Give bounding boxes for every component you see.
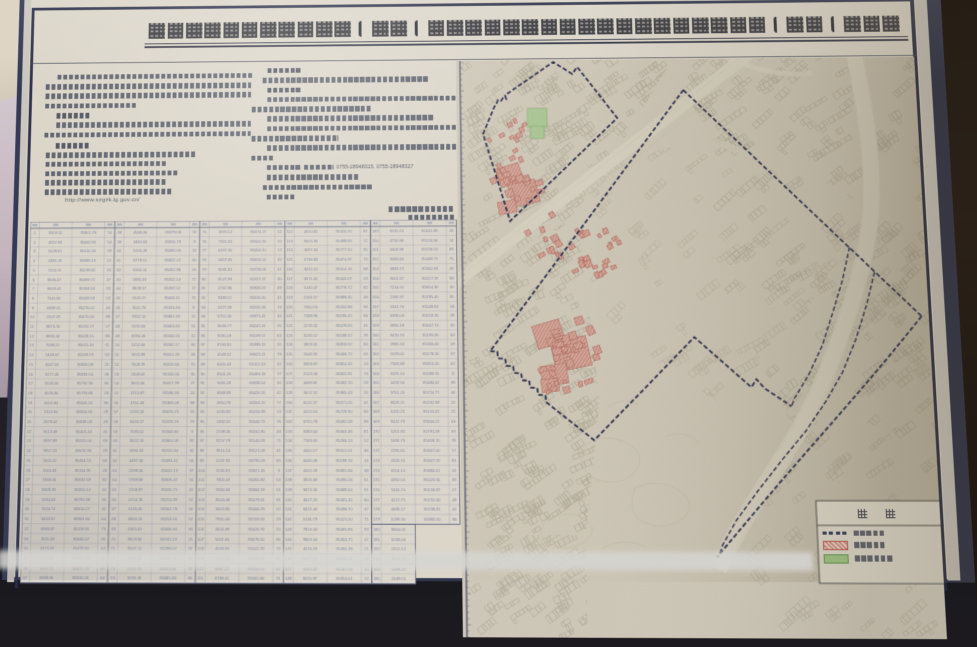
svg-text:85410.30: 85410.30 bbox=[79, 250, 95, 254]
svg-text:85891.94: 85891.94 bbox=[335, 468, 351, 472]
svg-text:51: 51 bbox=[114, 353, 118, 357]
svg-text:7188.96: 7188.96 bbox=[303, 314, 317, 318]
svg-text:3970.12: 3970.12 bbox=[218, 230, 232, 234]
svg-text:7825.99: 7825.99 bbox=[131, 353, 145, 357]
svg-text:73: 73 bbox=[277, 305, 281, 309]
svg-text:171: 171 bbox=[372, 439, 379, 443]
svg-text:43: 43 bbox=[116, 277, 120, 281]
svg-text:21: 21 bbox=[27, 420, 31, 424]
svg-text:8: 8 bbox=[192, 305, 194, 309]
svg-text:41: 41 bbox=[277, 296, 281, 300]
svg-text:39: 39 bbox=[450, 381, 454, 385]
svg-text:29: 29 bbox=[103, 410, 107, 414]
svg-text:85162.80: 85162.80 bbox=[248, 430, 264, 434]
svg-text:60: 60 bbox=[112, 439, 116, 443]
svg-text:35: 35 bbox=[190, 372, 194, 376]
svg-text:134: 134 bbox=[285, 439, 292, 443]
svg-text:52: 52 bbox=[363, 439, 367, 443]
svg-text:85922.91: 85922.91 bbox=[335, 372, 351, 376]
svg-text:17: 17 bbox=[191, 287, 195, 291]
svg-text:85217.19: 85217.19 bbox=[422, 276, 438, 280]
svg-text:2477.38: 2477.38 bbox=[217, 305, 231, 309]
svg-text:41: 41 bbox=[116, 259, 120, 263]
svg-text:6724.18: 6724.18 bbox=[128, 498, 142, 502]
svg-text:80: 80 bbox=[104, 382, 108, 386]
svg-text:4567.05: 4567.05 bbox=[45, 363, 59, 367]
svg-text:8383.64: 8383.64 bbox=[303, 429, 317, 433]
svg-text:47: 47 bbox=[364, 508, 368, 512]
svg-text:85398.15: 85398.15 bbox=[249, 343, 265, 347]
svg-text:26: 26 bbox=[363, 391, 367, 395]
svg-text:60: 60 bbox=[450, 333, 454, 337]
svg-text:176: 176 bbox=[373, 488, 380, 492]
svg-text:3701.20: 3701.20 bbox=[390, 391, 404, 395]
svg-text:95: 95 bbox=[363, 248, 367, 252]
svg-text:5532.27: 5532.27 bbox=[132, 296, 146, 300]
svg-text:85582.70: 85582.70 bbox=[335, 381, 351, 385]
svg-text:73: 73 bbox=[363, 258, 367, 262]
svg-text:85663.46: 85663.46 bbox=[335, 429, 351, 433]
svg-text:40: 40 bbox=[105, 306, 109, 310]
svg-text:46: 46 bbox=[451, 391, 455, 395]
svg-text:85549.83: 85549.83 bbox=[422, 305, 438, 309]
svg-text:23: 23 bbox=[26, 439, 30, 443]
svg-text:138: 138 bbox=[285, 478, 292, 482]
svg-text:117: 117 bbox=[286, 277, 292, 281]
svg-text:168: 168 bbox=[372, 410, 379, 414]
svg-text:157: 157 bbox=[372, 305, 378, 309]
svg-text:5769.68: 5769.68 bbox=[128, 478, 142, 482]
svg-text:85781.09: 85781.09 bbox=[423, 429, 439, 433]
svg-text:85668.94: 85668.94 bbox=[160, 527, 176, 531]
svg-text:18: 18 bbox=[28, 391, 32, 395]
svg-text:142: 142 bbox=[285, 517, 292, 521]
svg-text:88: 88 bbox=[200, 353, 204, 357]
svg-text:4419.56: 4419.56 bbox=[390, 381, 404, 385]
svg-text:30: 30 bbox=[450, 323, 454, 327]
svg-text:85724.99: 85724.99 bbox=[160, 498, 176, 502]
svg-text:85938.54: 85938.54 bbox=[249, 381, 265, 385]
svg-text:56: 56 bbox=[189, 459, 193, 463]
svg-text:17: 17 bbox=[451, 449, 455, 453]
svg-text:20: 20 bbox=[277, 343, 281, 347]
svg-text:8359.52: 8359.52 bbox=[48, 231, 62, 235]
svg-text:85079.61: 85079.61 bbox=[248, 498, 264, 502]
svg-text:7855.44: 7855.44 bbox=[215, 517, 229, 521]
svg-text:6100.23: 6100.23 bbox=[390, 410, 404, 414]
svg-text:152: 152 bbox=[372, 258, 378, 262]
svg-text:26: 26 bbox=[190, 353, 194, 357]
svg-text:85344.84: 85344.84 bbox=[163, 305, 179, 309]
svg-text:2535.81: 2535.81 bbox=[215, 468, 229, 472]
svg-text:4400.17: 4400.17 bbox=[303, 449, 317, 453]
svg-text:85902.93: 85902.93 bbox=[421, 267, 437, 271]
svg-text:24: 24 bbox=[26, 449, 30, 453]
svg-text:36: 36 bbox=[104, 372, 108, 376]
svg-text:83: 83 bbox=[451, 429, 455, 433]
svg-text:9005.90: 9005.90 bbox=[303, 239, 317, 243]
svg-text:6788.32: 6788.32 bbox=[214, 577, 228, 581]
svg-text:70: 70 bbox=[190, 362, 194, 366]
svg-text:85816.79: 85816.79 bbox=[165, 240, 181, 244]
svg-text:84: 84 bbox=[363, 314, 367, 318]
svg-text:10: 10 bbox=[276, 381, 280, 385]
svg-text:5065.28: 5065.28 bbox=[216, 381, 230, 385]
svg-text:85709.06: 85709.06 bbox=[248, 517, 264, 521]
svg-text:85232.99: 85232.99 bbox=[423, 400, 439, 404]
svg-text:85791.98: 85791.98 bbox=[73, 498, 89, 502]
svg-text:160: 160 bbox=[372, 333, 379, 337]
svg-text:85200.14: 85200.14 bbox=[74, 488, 90, 492]
svg-text:6389.21: 6389.21 bbox=[46, 306, 60, 310]
svg-text:25: 25 bbox=[188, 537, 192, 541]
svg-text:10: 10 bbox=[30, 315, 34, 319]
svg-text:6365.65: 6365.65 bbox=[127, 527, 141, 531]
svg-text:85454.10: 85454.10 bbox=[250, 249, 266, 253]
svg-text:78: 78 bbox=[451, 439, 455, 443]
svg-text:96: 96 bbox=[452, 518, 456, 522]
svg-text:7631.83: 7631.83 bbox=[40, 537, 54, 541]
svg-text:52: 52 bbox=[188, 517, 192, 521]
svg-text:97: 97 bbox=[199, 439, 203, 443]
svg-text:41: 41 bbox=[363, 401, 367, 405]
svg-text:76: 76 bbox=[276, 420, 280, 424]
svg-text:85863.59: 85863.59 bbox=[161, 439, 177, 443]
svg-text:158: 158 bbox=[372, 314, 378, 318]
svg-text:85209.19: 85209.19 bbox=[77, 353, 93, 357]
svg-text:20: 20 bbox=[191, 268, 195, 272]
svg-text:19: 19 bbox=[27, 401, 31, 405]
svg-text:64: 64 bbox=[112, 478, 116, 482]
svg-text:41: 41 bbox=[276, 449, 280, 453]
svg-text:9232.74: 9232.74 bbox=[389, 229, 403, 233]
svg-text:2166.97: 2166.97 bbox=[389, 295, 403, 299]
svg-text:5200.28: 5200.28 bbox=[133, 249, 147, 253]
svg-text:107: 107 bbox=[197, 537, 204, 541]
svg-text:3293.18: 3293.18 bbox=[126, 576, 140, 580]
svg-text:4756.98: 4756.98 bbox=[389, 239, 403, 243]
svg-text:126: 126 bbox=[285, 362, 291, 366]
svg-text:164: 164 bbox=[372, 372, 379, 376]
svg-text:85078.83: 85078.83 bbox=[335, 324, 351, 328]
svg-text:21: 21 bbox=[104, 363, 108, 367]
svg-text:68: 68 bbox=[111, 517, 115, 521]
svg-text:9433.57: 9433.57 bbox=[129, 420, 143, 424]
svg-text:85109.57: 85109.57 bbox=[249, 334, 265, 338]
svg-text:61: 61 bbox=[364, 478, 368, 482]
svg-text:85728.08: 85728.08 bbox=[250, 267, 266, 271]
svg-text:27: 27 bbox=[452, 488, 456, 492]
svg-text:25: 25 bbox=[277, 239, 281, 243]
svg-text:113: 113 bbox=[286, 239, 292, 243]
svg-text:55: 55 bbox=[113, 391, 117, 395]
svg-text:32: 32 bbox=[277, 258, 281, 262]
svg-text:82: 82 bbox=[201, 296, 205, 300]
svg-text:82: 82 bbox=[189, 439, 193, 443]
svg-text:96: 96 bbox=[276, 537, 280, 541]
svg-text:5736.83: 5736.83 bbox=[303, 258, 317, 262]
svg-text:85202.88: 85202.88 bbox=[335, 305, 351, 309]
svg-text:49: 49 bbox=[452, 498, 456, 502]
svg-text:6860.14: 6860.14 bbox=[128, 517, 142, 521]
svg-text:5292.26: 5292.26 bbox=[130, 410, 144, 414]
svg-text:63: 63 bbox=[451, 420, 455, 424]
svg-text:61: 61 bbox=[112, 449, 116, 453]
svg-text:92: 92 bbox=[200, 391, 204, 395]
svg-text:85098.76: 85098.76 bbox=[422, 371, 438, 375]
svg-text:6: 6 bbox=[32, 278, 34, 282]
svg-text:54: 54 bbox=[114, 382, 118, 386]
svg-text:3883.73: 3883.73 bbox=[389, 267, 403, 271]
svg-text:85092.08: 85092.08 bbox=[335, 420, 351, 424]
svg-text:105: 105 bbox=[197, 517, 204, 521]
svg-text:85155.62: 85155.62 bbox=[423, 410, 439, 414]
svg-text:130: 130 bbox=[285, 401, 292, 405]
svg-text:5579.01: 5579.01 bbox=[390, 352, 404, 356]
svg-text:85565.84: 85565.84 bbox=[247, 577, 263, 581]
svg-text:98: 98 bbox=[199, 449, 203, 453]
svg-text:85695.04: 85695.04 bbox=[335, 478, 351, 482]
svg-text:80: 80 bbox=[364, 498, 368, 502]
svg-text:85521.50: 85521.50 bbox=[335, 518, 351, 522]
svg-text:85676.73: 85676.73 bbox=[162, 410, 178, 414]
svg-text:7468.56: 7468.56 bbox=[42, 478, 56, 482]
svg-text:7634.74: 7634.74 bbox=[41, 507, 55, 511]
svg-text:98: 98 bbox=[363, 420, 367, 424]
svg-text:3032.10: 3032.10 bbox=[303, 267, 317, 271]
svg-text:52: 52 bbox=[188, 498, 192, 502]
svg-text:22: 22 bbox=[364, 577, 368, 581]
svg-text:85979.08: 85979.08 bbox=[165, 230, 181, 234]
svg-text:1: 1 bbox=[33, 231, 35, 235]
svg-text:65: 65 bbox=[106, 287, 110, 291]
svg-text:27: 27 bbox=[190, 381, 194, 385]
svg-text:75: 75 bbox=[449, 257, 453, 261]
svg-text:85159.81: 85159.81 bbox=[73, 527, 89, 531]
svg-text:41: 41 bbox=[103, 430, 107, 434]
svg-text:85792.96: 85792.96 bbox=[76, 382, 92, 386]
svg-text:75: 75 bbox=[191, 296, 195, 300]
svg-text:9422.79: 9422.79 bbox=[390, 420, 404, 424]
svg-text:9397.89: 9397.89 bbox=[43, 439, 57, 443]
svg-text:30: 30 bbox=[449, 285, 453, 289]
svg-text:30: 30 bbox=[277, 277, 281, 281]
svg-text:85469.77: 85469.77 bbox=[421, 257, 437, 261]
svg-text:85729.90: 85729.90 bbox=[335, 410, 351, 414]
svg-text:3591.81: 3591.81 bbox=[218, 268, 232, 272]
svg-text:148: 148 bbox=[284, 577, 291, 581]
svg-text:52: 52 bbox=[114, 363, 118, 367]
svg-text:7583.52: 7583.52 bbox=[129, 430, 143, 434]
svg-text:104: 104 bbox=[197, 507, 204, 511]
svg-text:17: 17 bbox=[277, 249, 281, 253]
svg-text:25: 25 bbox=[191, 315, 195, 319]
svg-text:20: 20 bbox=[190, 391, 194, 395]
svg-text:50: 50 bbox=[114, 344, 118, 348]
svg-text:62: 62 bbox=[112, 459, 116, 463]
svg-text:9513.08: 9513.08 bbox=[43, 430, 57, 434]
svg-text:177: 177 bbox=[373, 498, 380, 502]
svg-text:8308.33: 8308.33 bbox=[41, 488, 55, 492]
svg-text:85793.88: 85793.88 bbox=[76, 391, 92, 395]
svg-text:85778.72: 85778.72 bbox=[335, 286, 351, 290]
svg-text:9332.10: 9332.10 bbox=[131, 315, 145, 319]
svg-text:115: 115 bbox=[286, 258, 292, 262]
svg-text:3389.12: 3389.12 bbox=[217, 296, 231, 300]
svg-text:92: 92 bbox=[192, 230, 196, 234]
svg-text:5084.63: 5084.63 bbox=[41, 498, 55, 502]
svg-text:8255.97: 8255.97 bbox=[302, 577, 316, 581]
svg-text:4624.99: 4624.99 bbox=[215, 527, 229, 531]
svg-text:99: 99 bbox=[199, 459, 203, 463]
svg-text:8501.26: 8501.26 bbox=[217, 372, 231, 376]
svg-text:47: 47 bbox=[115, 315, 119, 319]
svg-text:29: 29 bbox=[276, 517, 280, 521]
svg-text:85028.15: 85028.15 bbox=[77, 334, 93, 338]
svg-text:3971.65: 3971.65 bbox=[303, 277, 317, 281]
svg-text:120: 120 bbox=[286, 305, 292, 309]
svg-text:42: 42 bbox=[452, 508, 456, 512]
svg-text:77: 77 bbox=[202, 249, 206, 253]
svg-text:85066.72: 85066.72 bbox=[335, 352, 351, 356]
svg-text:8948.99: 8948.99 bbox=[216, 391, 230, 395]
svg-text:9823.90: 9823.90 bbox=[127, 537, 141, 541]
svg-text:5003.98: 5003.98 bbox=[389, 248, 403, 252]
svg-text:85881.93: 85881.93 bbox=[163, 315, 179, 319]
svg-text:85: 85 bbox=[276, 459, 280, 463]
svg-text:9696.07: 9696.07 bbox=[47, 278, 61, 282]
svg-text:65: 65 bbox=[363, 352, 367, 356]
svg-text:85234.89: 85234.89 bbox=[248, 410, 264, 414]
svg-text:156: 156 bbox=[372, 295, 378, 299]
svg-text:85795.09: 85795.09 bbox=[248, 459, 264, 463]
svg-text:3605.40: 3605.40 bbox=[130, 382, 144, 386]
svg-text:7405.43: 7405.43 bbox=[215, 478, 229, 482]
svg-text:175: 175 bbox=[373, 478, 380, 482]
svg-text:85726.53: 85726.53 bbox=[421, 248, 437, 252]
svg-text:85598.93: 85598.93 bbox=[162, 391, 178, 395]
svg-text:13: 13 bbox=[363, 362, 367, 366]
svg-text:119: 119 bbox=[286, 296, 292, 300]
svg-text:9257.79: 9257.79 bbox=[216, 439, 230, 443]
svg-text:4217.75: 4217.75 bbox=[391, 498, 405, 502]
svg-text:9511.14: 9511.14 bbox=[216, 449, 230, 453]
svg-text:22: 22 bbox=[451, 410, 455, 414]
svg-text:7583.88: 7583.88 bbox=[390, 362, 404, 366]
svg-text:7345.85: 7345.85 bbox=[46, 296, 60, 300]
svg-text:85921.33: 85921.33 bbox=[248, 468, 264, 472]
svg-text:48: 48 bbox=[276, 430, 280, 434]
svg-text:13: 13 bbox=[29, 344, 33, 348]
svg-text:5237.65: 5237.65 bbox=[216, 459, 230, 463]
svg-text:85561.78: 85561.78 bbox=[160, 507, 176, 511]
svg-text:50: 50 bbox=[107, 231, 111, 235]
svg-text:8873.70: 8873.70 bbox=[46, 325, 60, 329]
svg-text:85501.62: 85501.62 bbox=[250, 239, 266, 243]
svg-text:85989.35: 85989.35 bbox=[335, 295, 351, 299]
svg-text:85156.06: 85156.06 bbox=[162, 372, 178, 376]
svg-text:85777.50: 85777.50 bbox=[335, 248, 351, 252]
svg-text:91: 91 bbox=[200, 381, 204, 385]
svg-text:4761.08: 4761.08 bbox=[130, 401, 144, 405]
svg-text:5094.73: 5094.73 bbox=[390, 439, 404, 443]
svg-text:85592.17: 85592.17 bbox=[163, 343, 179, 347]
svg-text:4548.52: 4548.52 bbox=[217, 353, 231, 357]
svg-text:85074.27: 85074.27 bbox=[250, 230, 266, 234]
svg-text:29: 29 bbox=[102, 449, 106, 453]
svg-text:2114.84: 2114.84 bbox=[44, 410, 58, 414]
svg-text:79: 79 bbox=[277, 353, 281, 357]
svg-text:162: 162 bbox=[372, 352, 379, 356]
svg-text:85886.61: 85886.61 bbox=[423, 468, 439, 472]
svg-text:106: 106 bbox=[197, 527, 204, 531]
svg-text:48: 48 bbox=[363, 295, 367, 299]
svg-text:29: 29 bbox=[104, 391, 108, 395]
svg-text:37: 37 bbox=[22, 576, 26, 580]
svg-text:155: 155 bbox=[372, 286, 378, 290]
svg-text:33: 33 bbox=[106, 268, 110, 272]
svg-text:93: 93 bbox=[451, 459, 455, 463]
svg-text:84: 84 bbox=[201, 315, 205, 319]
svg-text:14: 14 bbox=[449, 238, 453, 242]
svg-text:6337.35: 6337.35 bbox=[218, 249, 232, 253]
svg-text:94: 94 bbox=[200, 410, 204, 414]
svg-text:57: 57 bbox=[113, 410, 117, 414]
svg-text:5145.47: 5145.47 bbox=[303, 286, 317, 290]
svg-text:5152.00: 5152.00 bbox=[131, 343, 145, 347]
svg-text:167: 167 bbox=[372, 400, 379, 404]
svg-text:2: 2 bbox=[33, 241, 35, 245]
svg-text:9803.44: 9803.44 bbox=[303, 537, 317, 541]
svg-text:85838.03: 85838.03 bbox=[75, 420, 91, 424]
svg-text:22: 22 bbox=[451, 400, 455, 404]
svg-text:6398.04: 6398.04 bbox=[390, 314, 404, 318]
svg-text:44: 44 bbox=[116, 287, 120, 291]
svg-text:85066.11: 85066.11 bbox=[164, 296, 180, 300]
svg-text:2308.62: 2308.62 bbox=[130, 372, 144, 376]
svg-text:8746.91: 8746.91 bbox=[217, 343, 231, 347]
svg-text:5251.83: 5251.83 bbox=[390, 429, 404, 433]
svg-text:136: 136 bbox=[285, 459, 292, 463]
svg-text:85555.75: 85555.75 bbox=[161, 488, 177, 492]
svg-text:81: 81 bbox=[363, 229, 367, 233]
svg-text:53: 53 bbox=[114, 372, 118, 376]
svg-text:79: 79 bbox=[201, 268, 205, 272]
svg-text:47: 47 bbox=[277, 267, 281, 271]
svg-text:56: 56 bbox=[189, 478, 193, 482]
svg-text:85195.96: 85195.96 bbox=[422, 333, 438, 337]
svg-text:85694.54: 85694.54 bbox=[76, 372, 92, 376]
svg-text:8389.87: 8389.87 bbox=[40, 527, 54, 531]
svg-text:149: 149 bbox=[372, 229, 378, 233]
svg-text:7355.62: 7355.62 bbox=[218, 240, 232, 244]
svg-text:58: 58 bbox=[113, 420, 117, 424]
svg-text:85647.13: 85647.13 bbox=[422, 324, 438, 328]
svg-text:72: 72 bbox=[191, 277, 195, 281]
svg-text:3715.97: 3715.97 bbox=[130, 391, 144, 395]
svg-text:9: 9 bbox=[277, 468, 279, 472]
svg-text:9: 9 bbox=[193, 240, 195, 244]
svg-text:85506.26: 85506.26 bbox=[76, 401, 92, 405]
svg-text:85840.67: 85840.67 bbox=[73, 537, 89, 541]
svg-text:121: 121 bbox=[286, 315, 292, 319]
svg-text:54: 54 bbox=[107, 240, 111, 244]
svg-text:5: 5 bbox=[32, 268, 34, 272]
svg-text:79: 79 bbox=[189, 420, 193, 424]
svg-text:6645.08: 6645.08 bbox=[303, 459, 317, 463]
svg-text:153: 153 bbox=[372, 267, 378, 271]
svg-text:54: 54 bbox=[276, 478, 280, 482]
